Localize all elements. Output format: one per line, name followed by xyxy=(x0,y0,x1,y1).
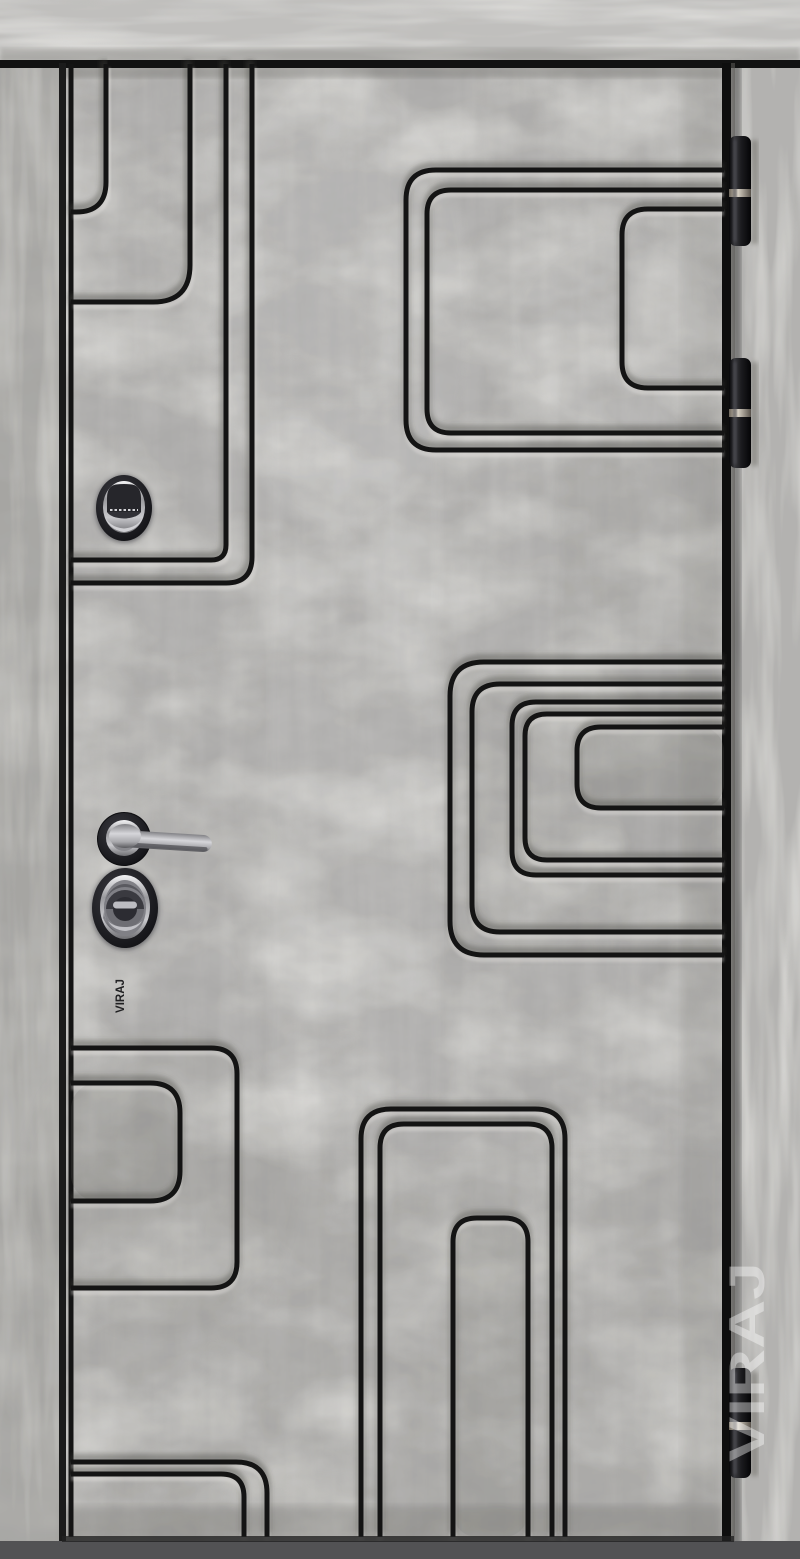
svg-text:VIRAJ: VIRAJ xyxy=(115,979,127,1013)
svg-text:VIRAJ: VIRAJ xyxy=(719,1262,775,1462)
